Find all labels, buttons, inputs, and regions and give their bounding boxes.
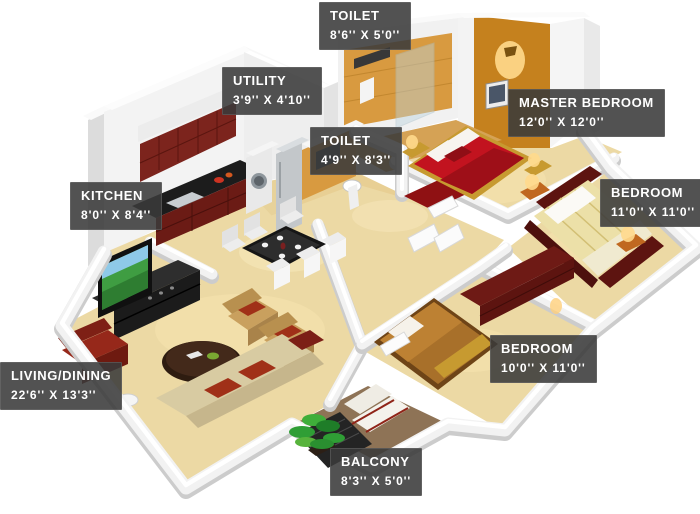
console-knob <box>170 286 174 289</box>
label-master-bedroom: MASTER BEDROOM 12'0'' X 12'0'' <box>508 89 665 137</box>
room-dims: 10'0'' X 11'0'' <box>501 360 586 376</box>
lamp-glow <box>528 153 540 167</box>
room-dims: 12'0'' X 12'0'' <box>519 114 654 130</box>
room-name: TOILET <box>330 8 400 25</box>
lamp-glow <box>621 226 635 242</box>
wall-lamp-glow <box>495 41 525 79</box>
plant-leaf <box>316 420 340 432</box>
room-dims: 8'0'' X 8'4'' <box>81 207 151 223</box>
room-name: BEDROOM <box>501 341 586 358</box>
plate <box>277 236 283 241</box>
room-dims: 11'0'' X 11'0'' <box>611 204 695 220</box>
counter-item <box>226 173 233 178</box>
lamp-glow <box>406 135 418 149</box>
basin-pedestal <box>348 184 359 210</box>
room-dims: 8'6'' X 5'0'' <box>330 27 400 43</box>
washer-door-inner <box>254 176 264 186</box>
room-name: MASTER BEDROOM <box>519 95 654 112</box>
console-knob <box>148 296 152 299</box>
picture-art <box>489 84 505 104</box>
label-balcony: BALCONY 8'3'' X 5'0'' <box>330 448 422 496</box>
plant-leaf <box>289 426 315 438</box>
room-name: UTILITY <box>233 73 311 90</box>
lamp-glow <box>525 174 539 190</box>
light-pool <box>352 200 428 232</box>
room-dims: 4'9'' X 8'3'' <box>321 152 391 168</box>
plate <box>295 245 301 250</box>
label-living-dining: LIVING/DINING 22'6'' X 13'3'' <box>0 362 122 410</box>
label-toilet-top: TOILET 8'6'' X 5'0'' <box>319 2 411 50</box>
room-name: TOILET <box>321 133 391 150</box>
room-name: LIVING/DINING <box>11 368 111 385</box>
room-dims: 8'3'' X 5'0'' <box>341 473 411 489</box>
floorplan-3d-render: TOILET 8'6'' X 5'0'' UTILITY 3'9'' X 4'1… <box>0 0 700 514</box>
label-kitchen: KITCHEN 8'0'' X 8'4'' <box>70 182 162 230</box>
room-dims: 22'6'' X 13'3'' <box>11 387 111 403</box>
label-toilet-mid: TOILET 4'9'' X 8'3'' <box>310 127 402 175</box>
room-name: BEDROOM <box>611 185 695 202</box>
bowl <box>207 353 219 360</box>
console-knob <box>159 291 163 294</box>
wall-lamp-glow <box>550 298 562 314</box>
label-utility: UTILITY 3'9'' X 4'10'' <box>222 67 322 115</box>
plate <box>279 254 285 259</box>
label-bedroom-bottom: BEDROOM 10'0'' X 11'0'' <box>490 335 597 383</box>
label-bedroom-right: BEDROOM 11'0'' X 11'0'' <box>600 179 700 227</box>
floorplan-scene <box>0 0 700 514</box>
centerpiece <box>281 243 286 250</box>
counter-item <box>214 177 224 183</box>
room-name: KITCHEN <box>81 188 151 205</box>
plate <box>262 243 268 248</box>
master-walls-top <box>458 12 590 18</box>
room-dims: 3'9'' X 4'10'' <box>233 92 311 108</box>
room-name: BALCONY <box>341 454 411 471</box>
